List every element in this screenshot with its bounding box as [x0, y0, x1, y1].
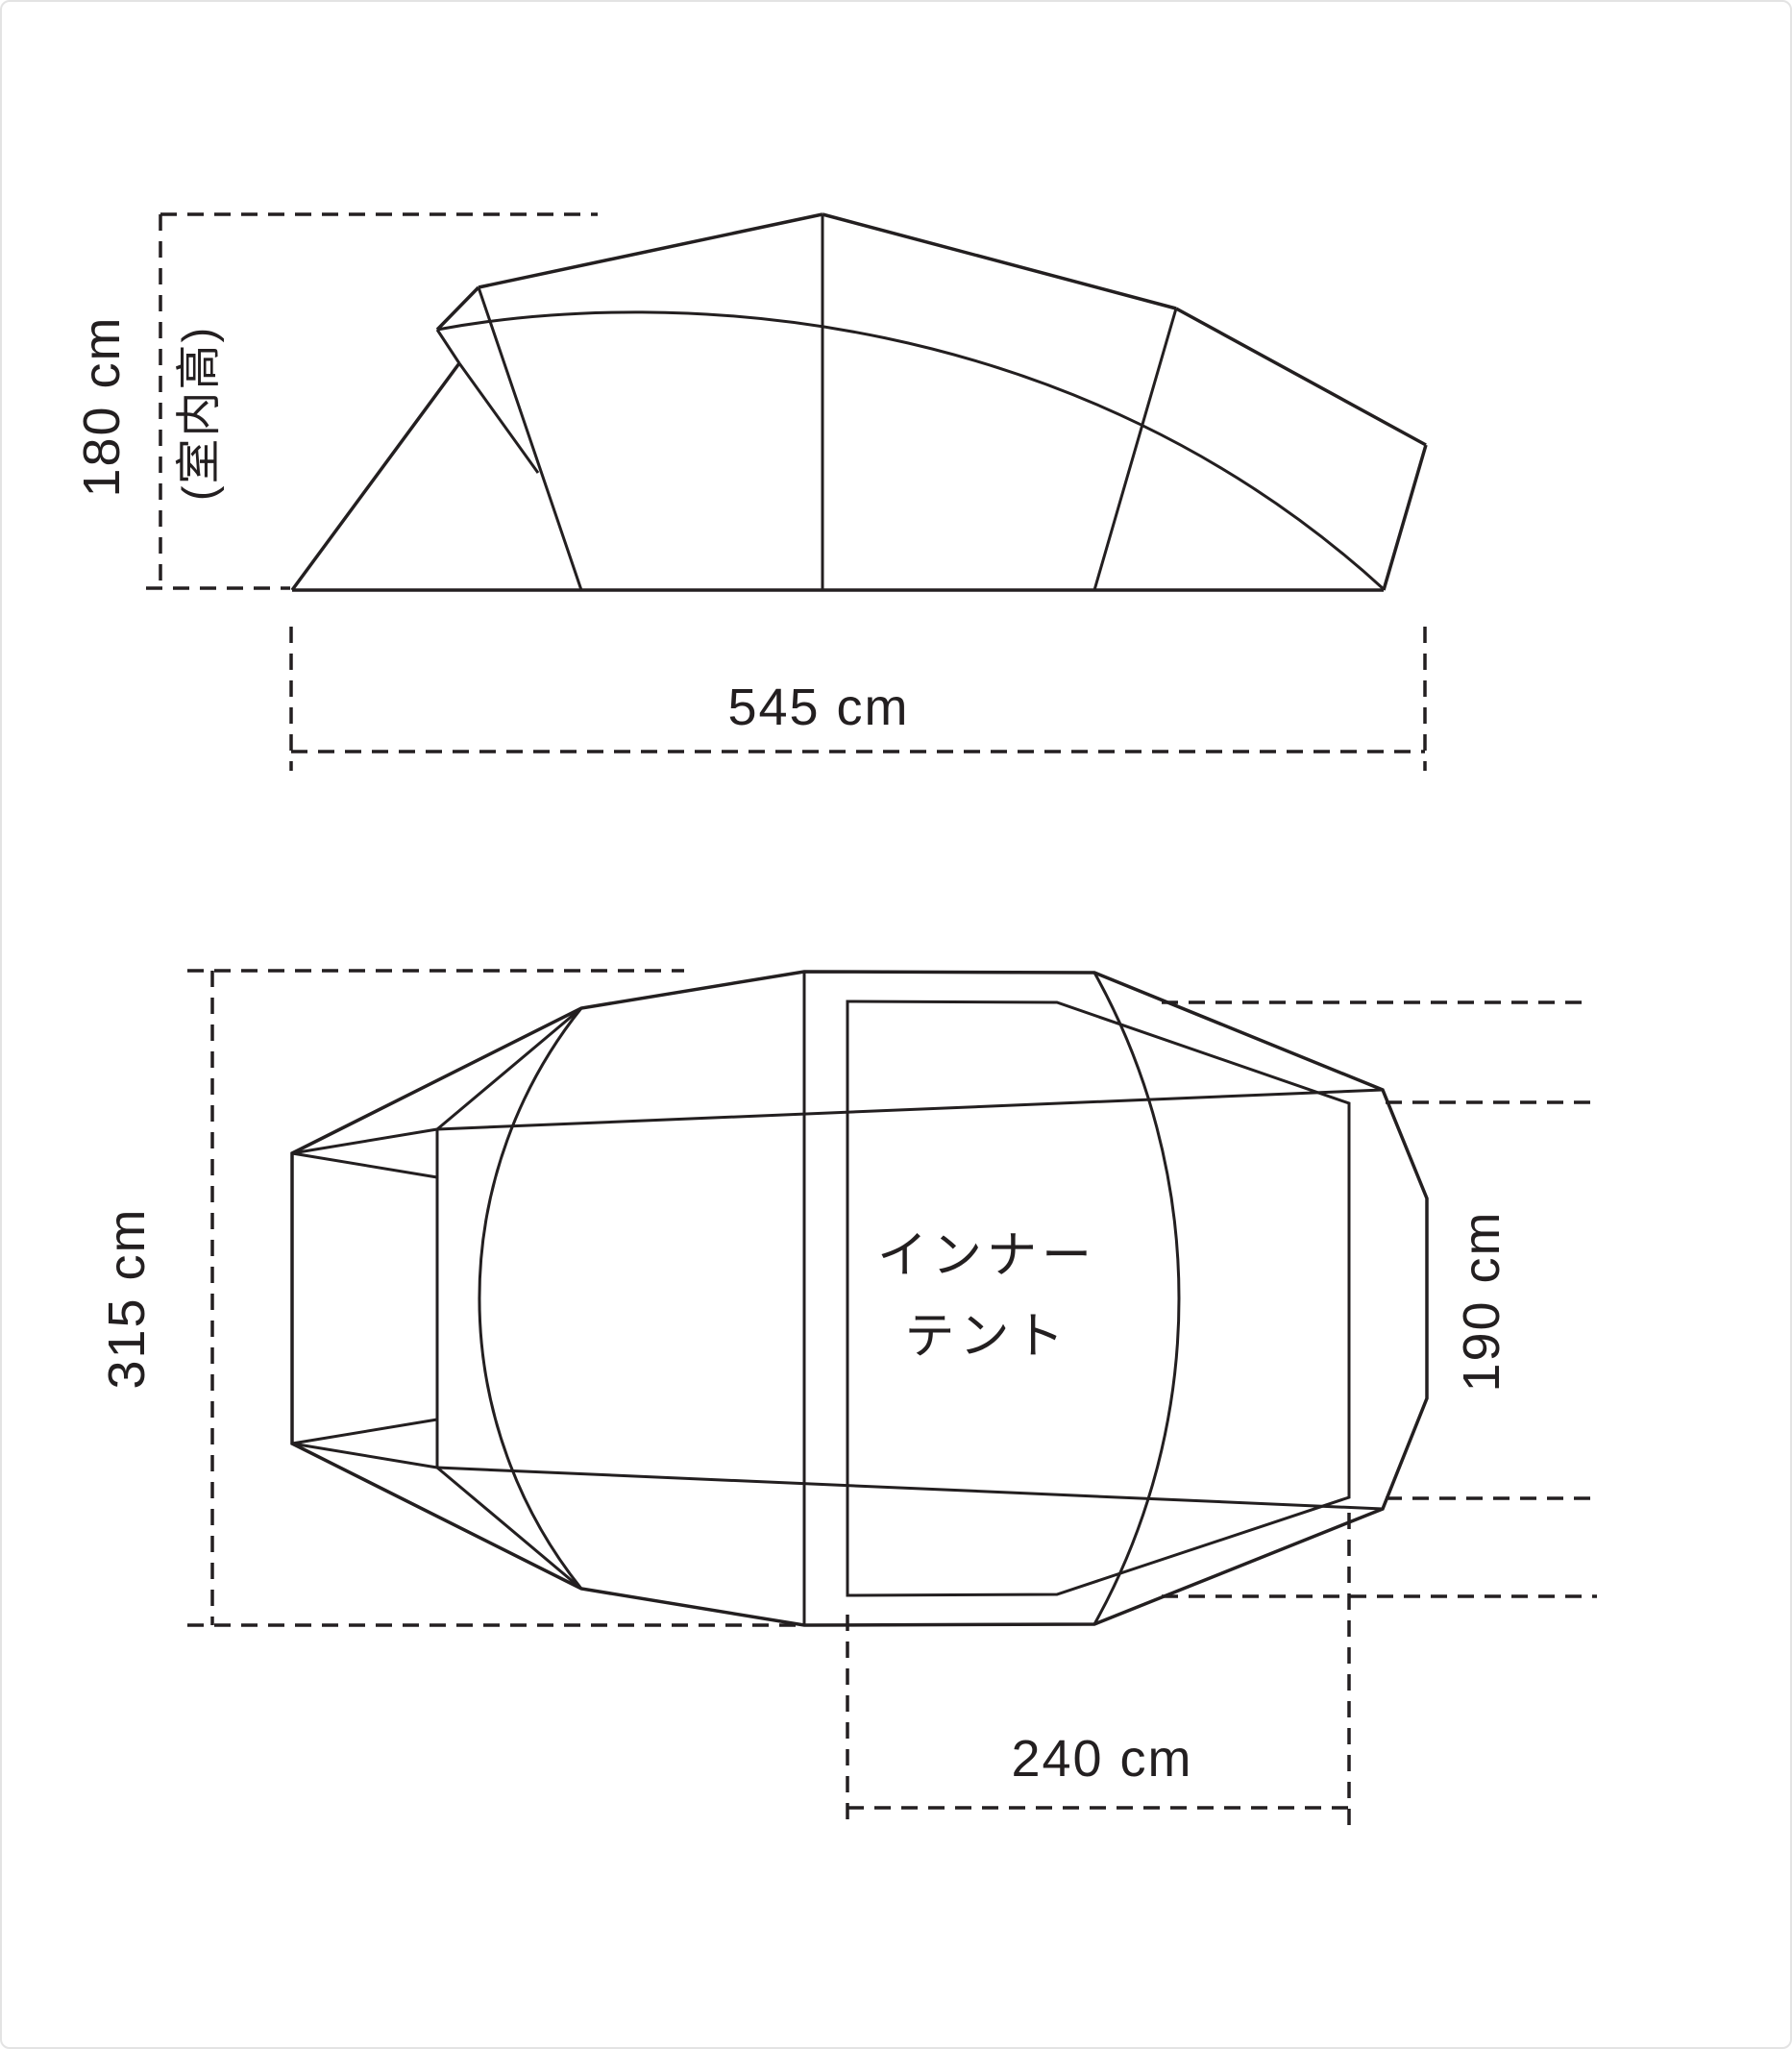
- dim-180-label: 180 cm: [73, 315, 131, 497]
- side-view: 180 cm (室内高) 545 cm: [73, 214, 1426, 771]
- dim-545-label: 545 cm: [727, 679, 909, 736]
- vestibule-top-fold: [292, 1153, 437, 1177]
- dome-pole-arc-left: [479, 1008, 581, 1589]
- ridge-line-top: [437, 1090, 1383, 1129]
- ridge-line-bottom: [437, 1468, 1383, 1509]
- tent-spec-diagram: 180 cm (室内高) 545 cm インナー テント 315 cm: [0, 0, 1792, 2049]
- side-left-notch: [437, 330, 459, 363]
- side-roof-right-upper: [822, 214, 1176, 309]
- side-left-slope: [292, 363, 459, 590]
- side-rear-pole: [1094, 309, 1176, 590]
- diagram-svg: 180 cm (室内高) 545 cm インナー テント 315 cm: [2, 2, 1792, 2049]
- dome-pole-arc-right: [1094, 973, 1179, 1624]
- side-front-pole: [479, 287, 581, 590]
- dim-190-label: 190 cm: [1453, 1210, 1510, 1392]
- inner-tent-area: [847, 1001, 1349, 1595]
- side-right-edge: [1384, 445, 1426, 590]
- side-roof-right-lower: [1176, 309, 1426, 445]
- vestibule-bottom-fold: [292, 1419, 437, 1444]
- dim-180-note: (室内高): [173, 326, 224, 501]
- dim-315-label: 315 cm: [98, 1207, 156, 1389]
- dim-240-label: 240 cm: [1011, 1730, 1192, 1788]
- inner-tent-label-line2: テント: [904, 1309, 1068, 1365]
- top-view: インナー テント 315 cm 190 cm 240 cm: [98, 971, 1597, 1826]
- side-fly-arc: [437, 312, 1384, 589]
- side-vestibule-seam: [459, 363, 538, 473]
- side-roof-left: [479, 214, 822, 287]
- inner-tent-label-line1: インナー: [877, 1228, 1096, 1284]
